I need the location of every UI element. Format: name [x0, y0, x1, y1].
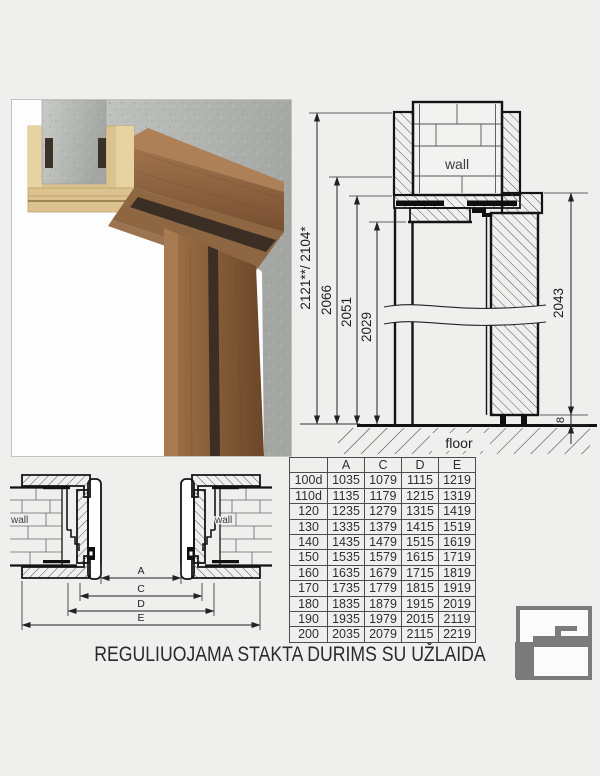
size-value-cell: 1615 [402, 550, 439, 565]
size-value-cell: 1219 [439, 473, 476, 488]
wall-label-left: wall [10, 515, 28, 526]
size-label-cell: 180 [290, 596, 328, 611]
size-value-cell: 1779 [365, 581, 402, 596]
size-value-cell: 1735 [328, 581, 365, 596]
size-value-cell: 1719 [439, 550, 476, 565]
size-value-cell: 1515 [402, 535, 439, 550]
table-row: 1501535157916151719 [290, 550, 476, 565]
column-header: A [328, 458, 365, 473]
size-value-cell: 1379 [365, 519, 402, 534]
size-value-cell: 1319 [439, 488, 476, 503]
size-label-cell: 200 [290, 627, 328, 642]
size-value-cell: 2019 [439, 596, 476, 611]
dim-floor-gap: 8 [555, 417, 567, 423]
size-value-cell: 1679 [365, 565, 402, 580]
size-value-cell: 1115 [402, 473, 439, 488]
size-value-cell: 1979 [365, 612, 402, 627]
size-value-cell: 1315 [402, 504, 439, 519]
logo-corner-square [515, 642, 534, 678]
sheet-title-wrap: REGULIUOJAMA STAKTA DURIMS SU UŽLAIDA [0, 643, 580, 667]
size-value-cell: 1235 [328, 504, 365, 519]
wall-block: wall [413, 102, 502, 195]
size-value-cell: 2219 [439, 627, 476, 642]
size-label-cell: 130 [290, 519, 328, 534]
dim-2051: 2051 [339, 297, 354, 327]
table-row: 1701735177918151919 [290, 581, 476, 596]
wall-label: wall [444, 156, 469, 172]
size-value-cell: 1619 [439, 535, 476, 550]
size-value-cell: 1835 [328, 596, 365, 611]
dim-2029: 2029 [359, 312, 374, 342]
dim-e: E [137, 612, 144, 624]
size-value-cell: 1935 [328, 612, 365, 627]
jamb-seal-groove [208, 246, 220, 456]
table-row: 100d1035107911151219 [290, 473, 476, 488]
table-row: 1401435147915151619 [290, 535, 476, 550]
size-value-cell: 1279 [365, 504, 402, 519]
size-value-cell: 1915 [402, 596, 439, 611]
size-label-cell: 160 [290, 565, 328, 580]
sheet-title: REGULIUOJAMA STAKTA DURIMS SU UŽLAIDA [94, 643, 485, 667]
table-row: 1301335137914151519 [290, 519, 476, 534]
size-label-cell: 110d [290, 488, 328, 503]
size-value-cell: 1335 [328, 519, 365, 534]
size-value-cell: 1135 [328, 488, 365, 503]
size-value-cell: 2035 [328, 627, 365, 642]
table-row: 110d1135117912151319 [290, 488, 476, 503]
size-value-cell: 1579 [365, 550, 402, 565]
brand-logo [516, 606, 592, 680]
size-label-cell: 140 [290, 535, 328, 550]
logo-bar [533, 636, 588, 647]
size-value-cell: 1635 [328, 565, 365, 580]
frame-assembly-right [181, 475, 272, 579]
size-value-cell: 1215 [402, 488, 439, 503]
size-value-cell: 1535 [328, 550, 365, 565]
horizontal-section-drawing: wall wall A C D E [0, 458, 290, 648]
size-value-cell: 1519 [439, 519, 476, 534]
floor: floor [300, 424, 597, 454]
size-value-cell: 1419 [439, 504, 476, 519]
column-header [290, 458, 328, 473]
vertical-section-drawing: floor wall [285, 15, 600, 460]
size-value-cell: 2079 [365, 627, 402, 642]
column-header: E [439, 458, 476, 473]
column-header: C [365, 458, 402, 473]
size-table-body: 100d1035107911151219110d1135117912151319… [290, 473, 476, 642]
dim-a: A [137, 565, 144, 577]
size-value-cell: 1179 [365, 488, 402, 503]
table-header-row: ACDE [290, 458, 476, 473]
size-label-cell: 150 [290, 550, 328, 565]
size-value-cell: 2115 [402, 627, 439, 642]
dim-total-height: 2121**/ 2104* [298, 226, 313, 310]
size-label-cell: 120 [290, 504, 328, 519]
spec-sheet: floor wall [0, 0, 600, 776]
table-row: 1901935197920152119 [290, 612, 476, 627]
size-table: ACDE 100d1035107911151219110d11351179121… [289, 457, 476, 643]
size-value-cell: 2119 [439, 612, 476, 627]
door-frame-photo [11, 99, 292, 457]
size-value-cell: 1815 [402, 581, 439, 596]
size-value-cell: 1479 [365, 535, 402, 550]
size-value-cell: 1879 [365, 596, 402, 611]
wall-label-right: wall [214, 515, 232, 526]
size-label-cell: 190 [290, 612, 328, 627]
size-value-cell: 1919 [439, 581, 476, 596]
dim-2066: 2066 [319, 285, 334, 315]
table-row: 1801835187919152019 [290, 596, 476, 611]
size-value-cell: 1819 [439, 565, 476, 580]
door-frame-photo-art [12, 100, 291, 456]
size-value-cell: 1435 [328, 535, 365, 550]
logo-hook-stub [555, 626, 561, 637]
size-table-head: ACDE [290, 458, 476, 473]
frame-assembly-left [10, 475, 101, 579]
break-line [384, 305, 546, 326]
size-value-cell: 1079 [365, 473, 402, 488]
floor-label: floor [445, 435, 473, 451]
dim-c: C [137, 583, 145, 595]
size-value-cell: 1415 [402, 519, 439, 534]
column-header: D [402, 458, 439, 473]
dim-d: D [137, 598, 145, 610]
size-label-cell: 100d [290, 473, 328, 488]
table-row: 2002035207921152219 [290, 627, 476, 642]
size-label-cell: 170 [290, 581, 328, 596]
size-value-cell: 2015 [402, 612, 439, 627]
table-row: 1601635167917151819 [290, 565, 476, 580]
dim-door-height: 2043 [551, 288, 566, 318]
size-value-cell: 1035 [328, 473, 365, 488]
size-value-cell: 1715 [402, 565, 439, 580]
table-row: 1201235127913151419 [290, 504, 476, 519]
